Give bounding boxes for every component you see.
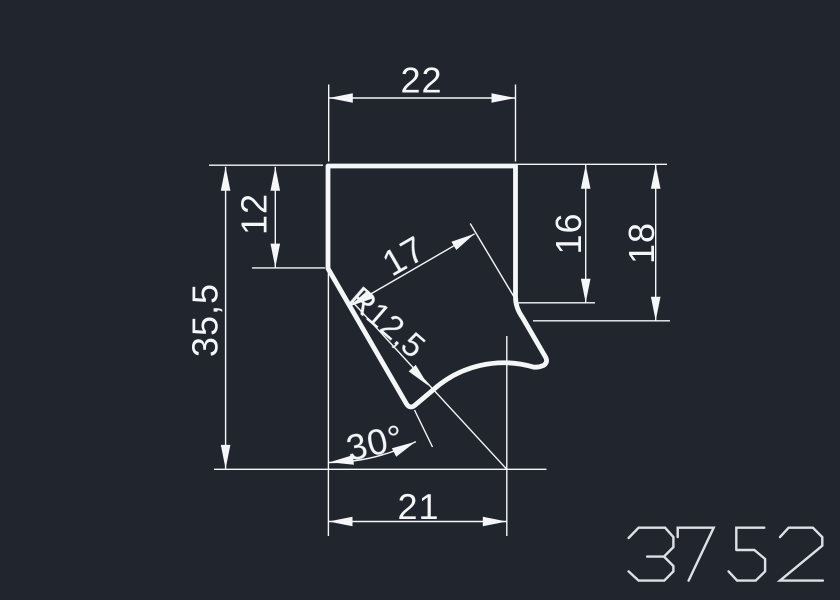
svg-text:16: 16 (548, 212, 589, 254)
svg-text:35,5: 35,5 (185, 283, 226, 357)
svg-text:21: 21 (397, 486, 439, 527)
svg-text:18: 18 (621, 222, 662, 264)
svg-text:22: 22 (400, 59, 442, 100)
svg-text:12: 12 (234, 193, 275, 235)
